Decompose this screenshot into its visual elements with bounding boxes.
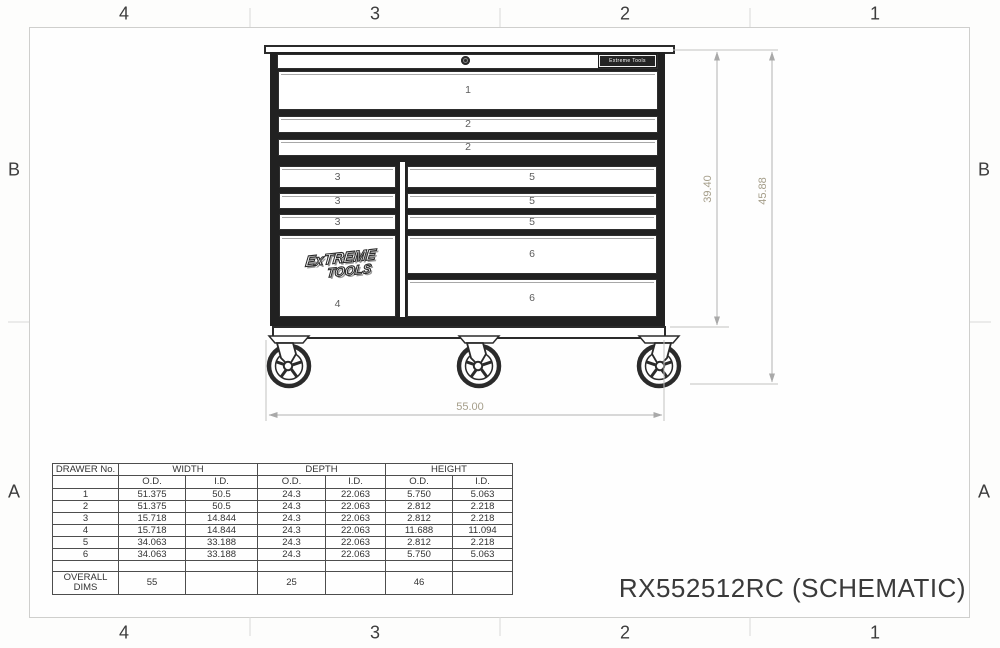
drawer-2b: 2 [278,139,658,156]
table-cell: 24.3 [258,513,326,525]
drawer-6b: 6 [407,279,657,317]
table-cell: 11.688 [386,525,453,537]
drawer-dimensions-table: DRAWER No. WIDTH DEPTH HEIGHT O.D. I.D. … [52,463,513,595]
table-cell: 34.063 [119,549,186,561]
drawer-3b: 3 [279,193,396,209]
overall-dims-label: OVERALL DIMS [53,572,119,595]
table-cell: 2.812 [386,537,453,549]
table-cell: 22.063 [326,513,386,525]
zone-top-4: 4 [119,4,129,25]
table-cell: 51.375 [119,489,186,501]
table-row: 251.37550.524.322.0632.8122.218 [53,501,513,513]
lock-icon [461,56,470,65]
table-row: 534.06333.18824.322.0632.8122.218 [53,537,513,549]
table-cell: 1 [53,489,119,501]
zone-bottom-2: 2 [620,623,630,644]
table-cell: 25 [258,572,326,595]
subheader-od: O.D. [258,476,326,489]
table-cell: 3 [53,513,119,525]
drawer-5a-label: 5 [529,172,535,183]
drawer-1: 1 [278,71,658,110]
brand-badge: Extreme Tools [598,54,657,68]
extreme-tools-logo: ExTREME TOOLS [293,247,387,283]
table-cell: 5 [53,537,119,549]
table-cell: 6 [53,549,119,561]
table-cell [258,561,326,572]
zone-right-a: A [978,482,990,503]
subheader-od: O.D. [119,476,186,489]
drawer-3a: 3 [279,166,396,188]
table-cell: 2.218 [453,513,513,525]
drawer-6a-label: 6 [529,249,535,260]
table-header-row: DRAWER No. WIDTH DEPTH HEIGHT [53,464,513,476]
table-cell [186,561,258,572]
table-cell: 24.3 [258,489,326,501]
table-cell: 11.094 [453,525,513,537]
header-height: HEIGHT [386,464,513,476]
drawer-1-label: 1 [465,85,471,96]
drawing-title: RX552512RC (SCHEMATIC) [619,573,966,604]
table-cell: 22.063 [326,489,386,501]
table-cell [326,572,386,595]
table-cell: 51.375 [119,501,186,513]
bank-divider [400,162,405,317]
table-cell [53,561,119,572]
drawer-3c-label: 3 [335,217,341,228]
zone-bottom-3: 3 [370,623,380,644]
table-cell: 14.844 [186,513,258,525]
zone-bottom-1: 1 [870,623,880,644]
table-row: 415.71814.84424.322.06311.68811.094 [53,525,513,537]
table-cell: 22.063 [326,537,386,549]
table-cell: 22.063 [326,501,386,513]
table-cell: 2.218 [453,501,513,513]
drawer-3b-label: 3 [335,196,341,207]
table-cell: 2.218 [453,537,513,549]
schematic-sheet: 4 3 2 1 4 3 2 1 B A B A Extreme Tools 1 … [0,0,1000,648]
subheader-id: I.D. [186,476,258,489]
table-row: 315.71814.84424.322.0632.8122.218 [53,513,513,525]
table-cell [453,572,513,595]
zone-top-2: 2 [620,4,630,25]
table-spacer-row [53,561,513,572]
drawer-2a: 2 [278,116,658,133]
drawer-6b-label: 6 [529,293,535,304]
drawer-5b-label: 5 [529,196,535,207]
zone-top-1: 1 [870,4,880,25]
table-cell: 34.063 [119,537,186,549]
header-depth: DEPTH [258,464,386,476]
subheader-id: I.D. [453,476,513,489]
table-cell [186,572,258,595]
header-drawer-no: DRAWER No. [53,464,119,476]
table-cell: 50.5 [186,489,258,501]
table-cell: 46 [386,572,453,595]
table-cell: 5.750 [386,549,453,561]
cabinet-base [272,326,666,339]
table-cell [453,561,513,572]
table-cell: 24.3 [258,525,326,537]
zone-left-b: B [8,160,20,181]
table-cell: 22.063 [326,525,386,537]
table-cell [53,476,119,489]
table-cell: 33.188 [186,549,258,561]
table-cell [326,561,386,572]
header-width: WIDTH [119,464,258,476]
zone-right-b: B [978,160,990,181]
drawer-2b-label: 2 [465,142,471,153]
table-cell: 55 [119,572,186,595]
table-cell [119,561,186,572]
drawer-4-label: 4 [335,299,341,310]
zone-bottom-4: 4 [119,623,129,644]
drawer-5a: 5 [407,166,657,188]
table-cell: 5.063 [453,549,513,561]
drawer-2a-label: 2 [465,119,471,130]
drawer-6a: 6 [407,235,657,274]
table-cell: 50.5 [186,501,258,513]
table-cell: 2.812 [386,513,453,525]
table-cell: 24.3 [258,549,326,561]
drawer-4: ExTREME TOOLS 4 [279,235,396,317]
table-row: 634.06333.18824.322.0635.7505.063 [53,549,513,561]
drawer-5c: 5 [407,214,657,230]
table-cell: 4 [53,525,119,537]
table-cell: 22.063 [326,549,386,561]
drawer-5b: 5 [407,193,657,209]
table-cell: 5.750 [386,489,453,501]
table-cell: 15.718 [119,513,186,525]
table-cell: 14.844 [186,525,258,537]
drawer-3a-label: 3 [335,172,341,183]
table-cell: 24.3 [258,501,326,513]
table-cell: 2 [53,501,119,513]
table-cell: 15.718 [119,525,186,537]
drawer-5c-label: 5 [529,217,535,228]
table-cell: 33.188 [186,537,258,549]
zone-top-3: 3 [370,4,380,25]
table-row: 151.37550.524.322.0635.7505.063 [53,489,513,501]
table-cell: 5.063 [453,489,513,501]
table-cell [386,561,453,572]
table-cell: 24.3 [258,537,326,549]
table-cell: 2.812 [386,501,453,513]
table-overall-row: OVERALL DIMS 55 25 46 [53,572,513,595]
zone-left-a: A [8,482,20,503]
drawer-3c: 3 [279,214,396,230]
brand-badge-label: Extreme Tools [609,58,646,64]
subheader-id: I.D. [326,476,386,489]
table-subheader-row: O.D. I.D. O.D. I.D. O.D. I.D. [53,476,513,489]
subheader-od: O.D. [386,476,453,489]
